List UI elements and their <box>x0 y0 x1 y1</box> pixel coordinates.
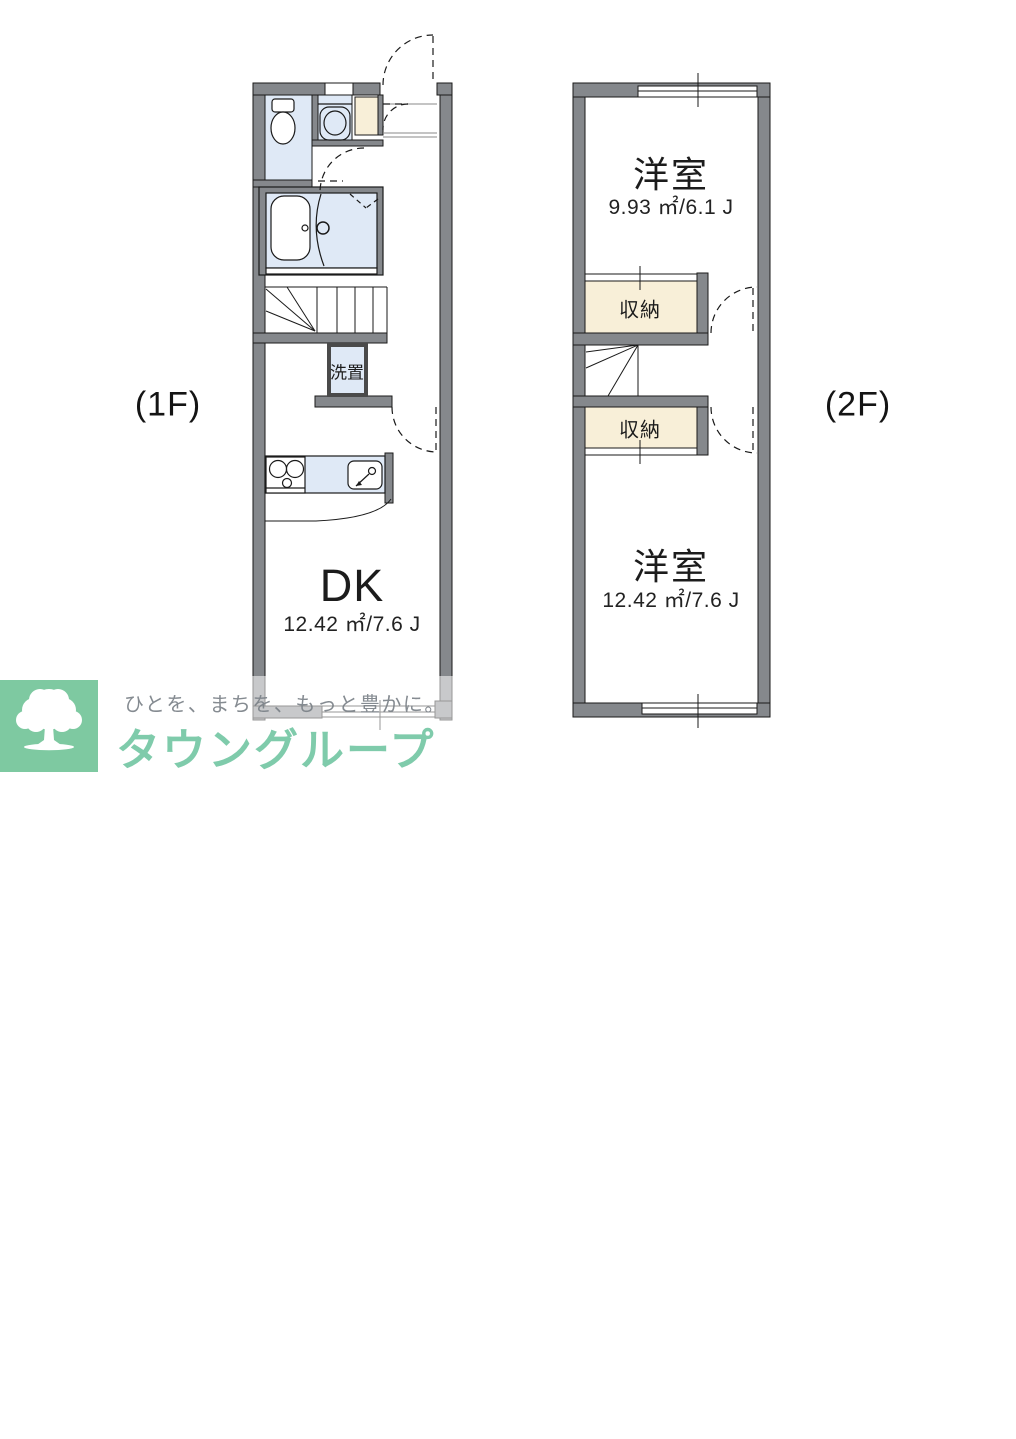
stairs-2f <box>586 345 638 396</box>
room-lower-name: 洋室 <box>633 538 709 590</box>
town-group-logo: TOWN GROUP <box>0 680 98 772</box>
brand-company-ja: タウングループ <box>116 714 435 778</box>
window-top-1f <box>325 83 353 95</box>
laundry-label: 洗置 <box>330 359 364 384</box>
room-upper-area: 9.93 ㎡/6.1 J <box>608 191 733 221</box>
bath-unit <box>259 187 383 275</box>
washbasin-icon <box>318 104 352 140</box>
dk-room-area: 12.42 ㎡/7.6 J <box>283 608 420 638</box>
counter-edge-curve <box>265 499 391 521</box>
door-swings-2f <box>711 287 757 453</box>
logo-company-en: TOWN GROUP <box>0 1425 98 1439</box>
storage-lower-label: 収納 <box>619 414 661 443</box>
entrance-step-lines <box>383 104 437 137</box>
storage-upper-label: 収納 <box>619 294 661 323</box>
window-top-2f <box>638 73 757 107</box>
toilet-icon <box>271 99 295 144</box>
window-bottom-2f <box>642 694 757 728</box>
floor1-label: (1F) <box>135 386 201 425</box>
tree-icon <box>0 680 98 772</box>
stove-icon <box>266 457 305 493</box>
floorplan-page: { "floor1": { "label": "(1F)", "dk": { "… <box>0 0 1016 772</box>
stairs-1f <box>265 287 387 333</box>
bathtub-icon <box>271 196 310 260</box>
dk-room-name: DK <box>320 560 385 612</box>
kitchen-counter <box>265 456 391 521</box>
brand-tagline: ひとを、まちを、もっと豊かに。 <box>124 688 446 717</box>
room-lower-area: 12.42 ㎡/7.6 J <box>602 584 739 614</box>
floor2-label: (2F) <box>825 386 891 425</box>
sink-icon <box>348 461 382 489</box>
water-heater-box <box>355 97 378 135</box>
